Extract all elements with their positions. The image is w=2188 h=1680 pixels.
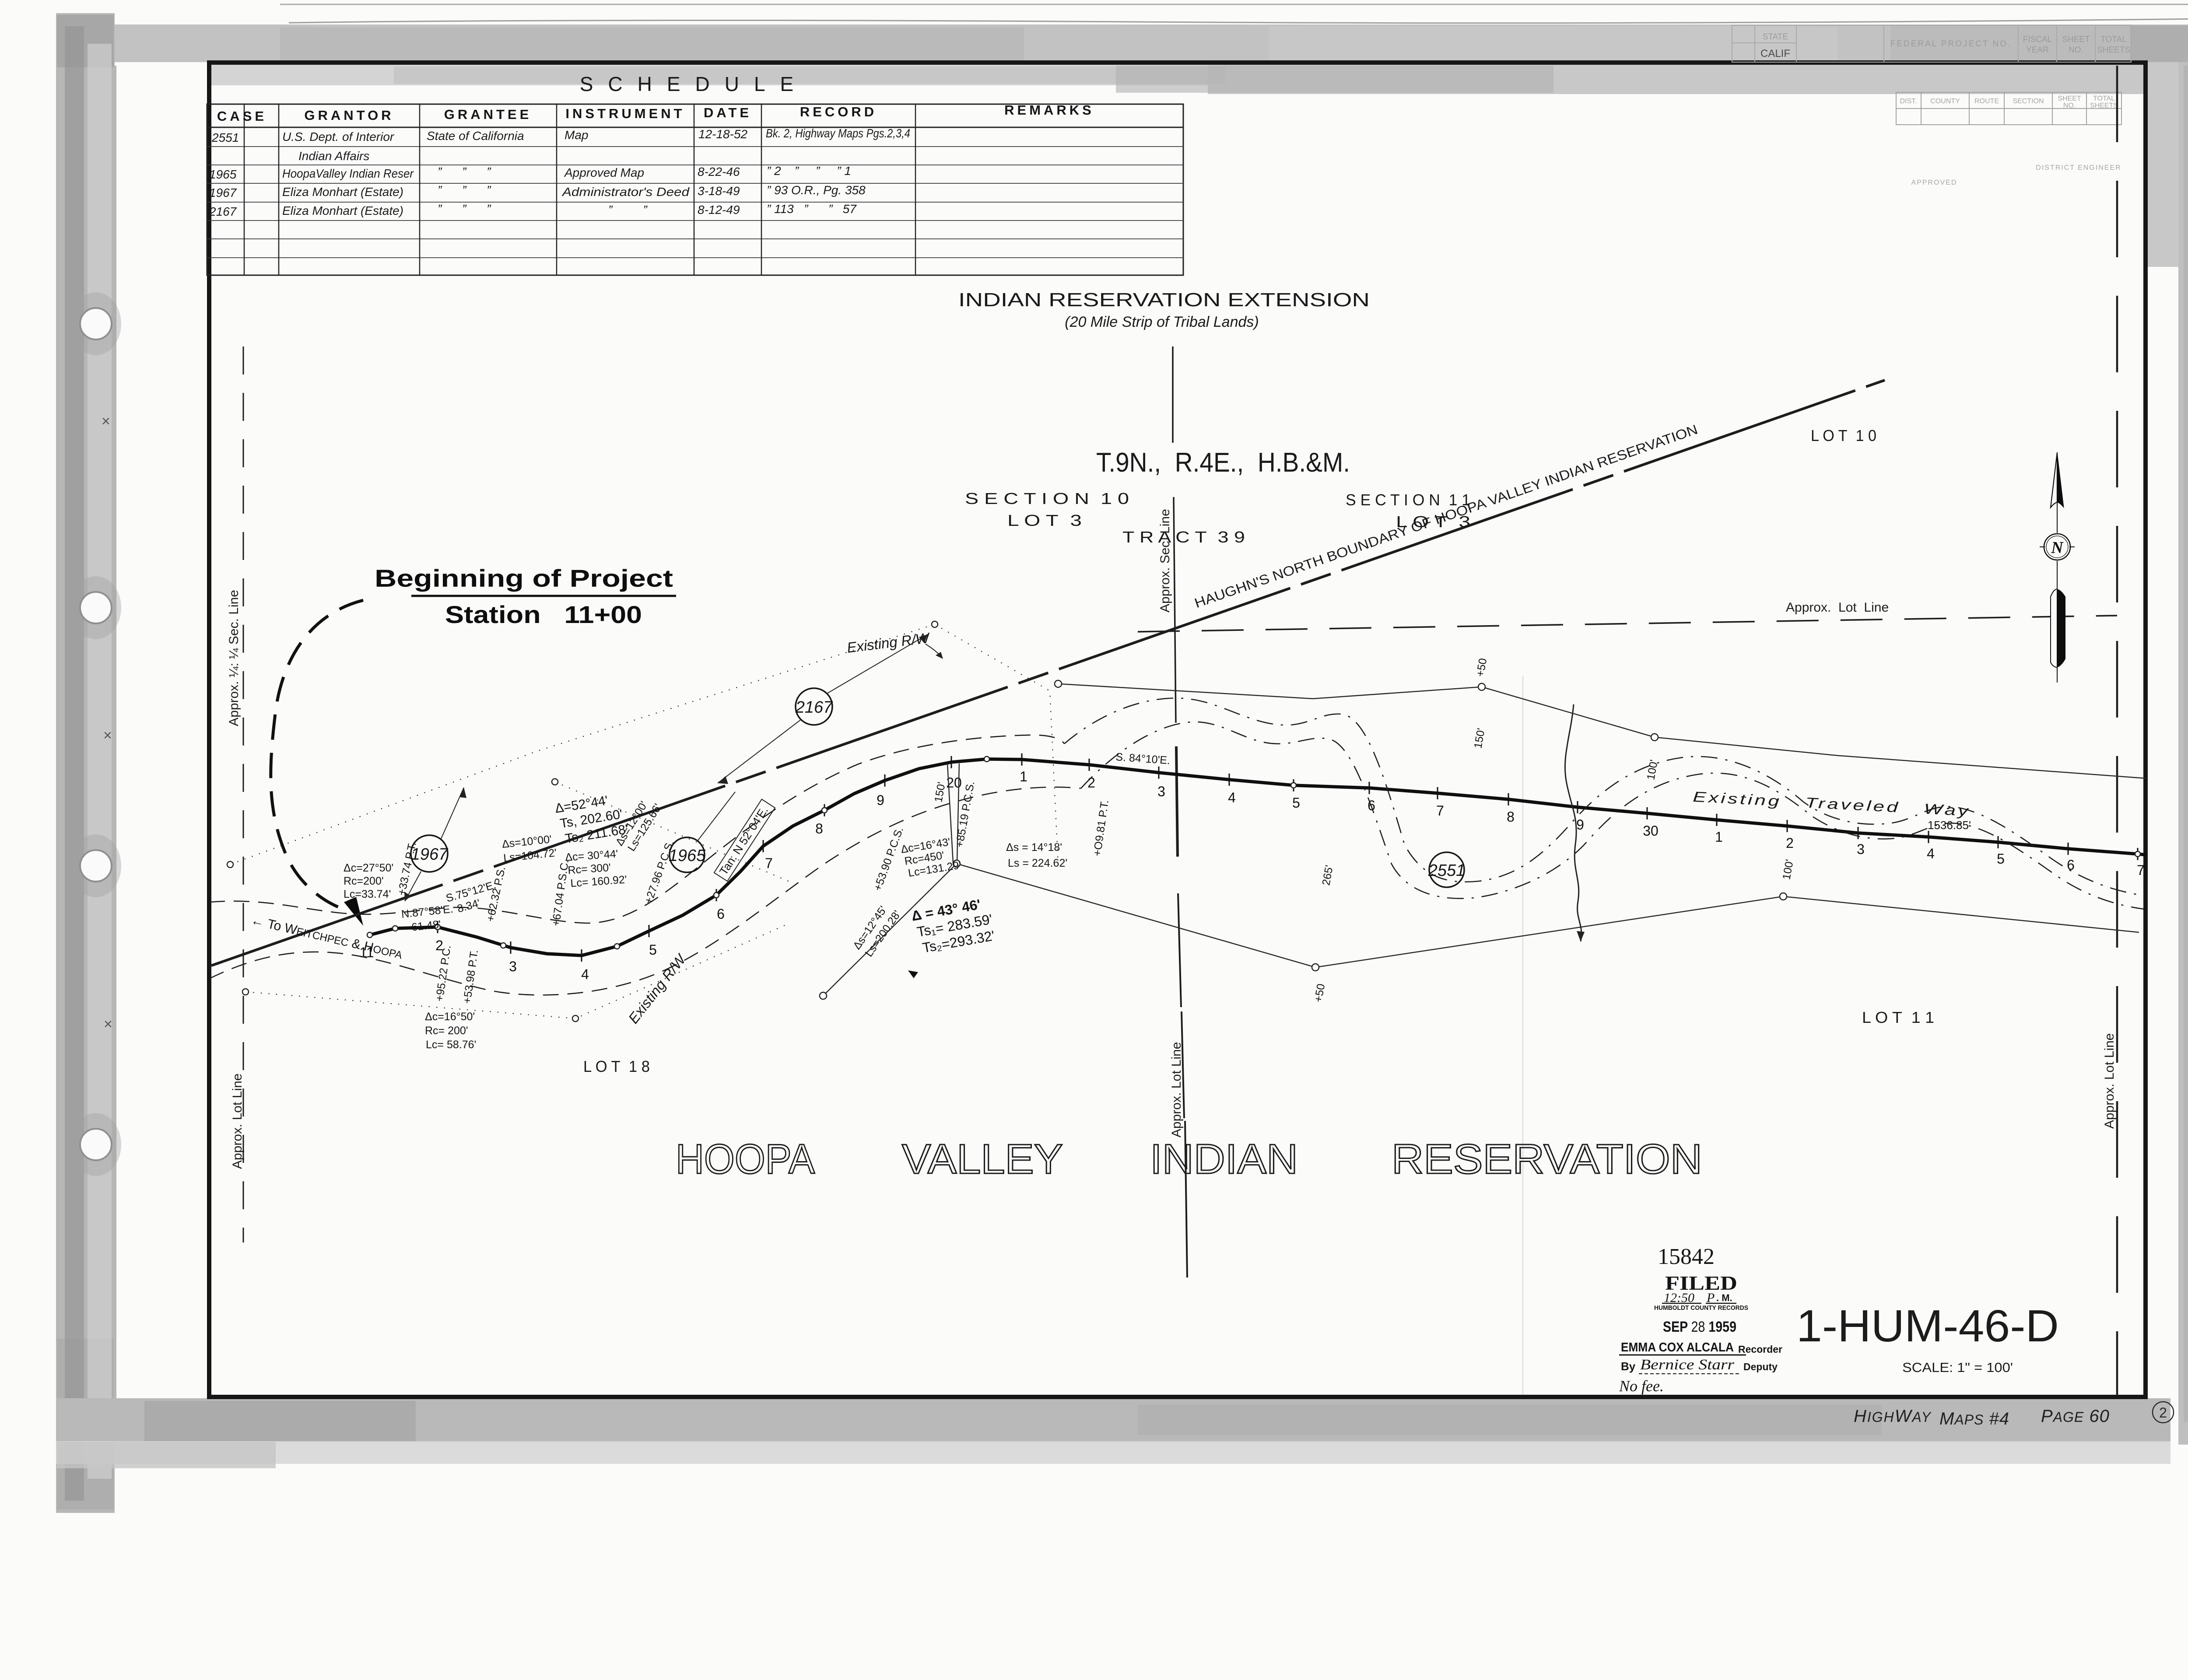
svg-text:2: 2 — [2159, 1405, 2167, 1421]
svg-text:2167: 2167 — [795, 698, 833, 717]
svg-text:265': 265' — [1320, 864, 1336, 886]
svg-text:Rc= 300': Rc= 300' — [568, 861, 611, 877]
svg-text:T R A C T 3 9: T R A C T 3 9 — [1122, 528, 1245, 546]
svg-text:4: 4 — [581, 966, 589, 982]
svg-text:Existing R/W: Existing R/W — [625, 950, 689, 1026]
svg-text:Bernice Starr: Bernice Starr — [1640, 1357, 1735, 1373]
svg-text:150': 150' — [1472, 727, 1487, 749]
svg-text:L O T 1 0: L O T 1 0 — [1811, 427, 1876, 444]
svg-text:7: 7 — [2137, 862, 2145, 878]
svg-text:. M.: . M. — [1716, 1292, 1732, 1303]
svg-text:HIGHWAY: HIGHWAY — [1854, 1407, 1932, 1426]
svg-text:SEP 28 1959: SEP 28 1959 — [1663, 1319, 1736, 1335]
svg-text:2551: 2551 — [211, 131, 239, 144]
svg-text:3: 3 — [509, 959, 517, 974]
svg-text:Approved Map: Approved Map — [564, 166, 644, 179]
svg-text:SHEET: SHEET — [2062, 35, 2090, 44]
svg-text:1: 1 — [1020, 769, 1027, 784]
svg-text:T.9N., R.4E., H.B.&M.: T.9N., R.4E., H.B.&M. — [1096, 448, 1350, 478]
svg-text:No fee.: No fee. — [1619, 1377, 1664, 1395]
svg-text:” 113 ” ” 57: ” 113 ” ” 57 — [767, 202, 857, 216]
svg-text:TOTAL: TOTAL — [2100, 35, 2126, 44]
svg-text:SHEET: SHEET — [2058, 95, 2081, 102]
svg-text:INDIAN RESERVATION EXTENSION: INDIAN RESERVATION EXTENSION — [958, 289, 1370, 311]
svg-text:15842: 15842 — [1658, 1244, 1715, 1269]
svg-text:Administrator's Deed: Administrator's Deed — [561, 185, 690, 199]
svg-text:” 2 ” ” ” 1: ” 2 ” ” ” 1 — [767, 164, 851, 178]
svg-text:+50: +50 — [1312, 983, 1327, 1003]
svg-text:Station 11+00: Station 11+00 — [445, 601, 642, 628]
svg-text:L O T 3: L O T 3 — [1007, 511, 1082, 529]
svg-text:Map: Map — [565, 128, 588, 142]
svg-text:+27.96 P.C.S.: +27.96 P.C.S. — [642, 839, 677, 906]
svg-text:6: 6 — [717, 906, 725, 922]
svg-text:TOTAL: TOTAL — [2093, 95, 2115, 102]
svg-text:Δs = 14°18': Δs = 14°18' — [1006, 841, 1062, 854]
svg-text:HUMBOLDT COUNTY RECORDS: HUMBOLDT COUNTY RECORDS — [1654, 1304, 1748, 1312]
svg-text:NO.: NO. — [2063, 102, 2076, 109]
svg-text:8: 8 — [815, 821, 823, 836]
svg-text:7: 7 — [1436, 803, 1444, 819]
svg-text:SECTION: SECTION — [2013, 98, 2044, 105]
svg-text:INSTRUMENT: INSTRUMENT — [565, 106, 685, 121]
svg-text:NO.: NO. — [2069, 45, 2083, 55]
svg-text:8: 8 — [1507, 809, 1515, 825]
svg-text:3: 3 — [1857, 841, 1865, 857]
svg-text:Δc=27°50': Δc=27°50' — [344, 862, 393, 874]
svg-text:← To WEITCHPEC & HOOPA: ← To WEITCHPEC & HOOPA — [249, 913, 403, 962]
svg-text:SCALE: 1" = 100': SCALE: 1" = 100' — [1902, 1360, 2013, 1375]
svg-text:Approx. Lot Line: Approx. Lot Line — [1169, 1042, 1184, 1137]
svg-text:Recorder: Recorder — [1738, 1344, 1782, 1355]
svg-text:Approx. ¼: ¼ Sec. Line: Approx. ¼: ¼ Sec. Line — [227, 590, 241, 726]
svg-text:” ”: ” ” — [608, 203, 648, 217]
svg-text:Eliza Monhart (Estate): Eliza Monhart (Estate) — [282, 185, 403, 199]
svg-text:×: × — [103, 727, 112, 744]
svg-text:RECORD: RECORD — [800, 104, 877, 119]
svg-text:APPROVED: APPROVED — [1911, 179, 1957, 186]
svg-text:N.87°58'E.: N.87°58'E. — [401, 903, 454, 920]
svg-text:Eliza Monhart (Estate): Eliza Monhart (Estate) — [282, 204, 403, 217]
svg-text:ROUTE: ROUTE — [1974, 98, 1999, 105]
svg-text:5: 5 — [1997, 851, 2005, 867]
svg-text:YEAR: YEAR — [2026, 45, 2049, 55]
svg-text:×: × — [102, 413, 110, 430]
svg-text:COUNTY: COUNTY — [1930, 98, 1960, 105]
svg-text:RESERVATION: RESERVATION — [1392, 1136, 1702, 1183]
svg-text:+O9.81 P.T.: +O9.81 P.T. — [1091, 799, 1111, 857]
svg-text:MAPS #4: MAPS #4 — [1939, 1409, 2009, 1428]
svg-text:State of California: State of California — [427, 129, 524, 143]
svg-text:GRANTOR: GRANTOR — [304, 108, 394, 123]
svg-text:Approx. Lot Line: Approx. Lot Line — [230, 1074, 245, 1169]
svg-text:N: N — [2051, 539, 2064, 557]
svg-text:” ” ”: ” ” ” — [438, 183, 491, 197]
svg-text:4: 4 — [1927, 846, 1935, 861]
svg-text:1967: 1967 — [209, 186, 237, 199]
svg-text:FISCAL: FISCAL — [2023, 35, 2052, 44]
svg-text:” ” ”: ” ” ” — [438, 165, 491, 178]
svg-text:U.S. Dept. of Interior: U.S. Dept. of Interior — [282, 130, 395, 143]
svg-text:Indian Affairs: Indian Affairs — [298, 149, 369, 163]
svg-text:12-18-52: 12-18-52 — [698, 127, 748, 141]
svg-text:DATE: DATE — [704, 105, 752, 120]
svg-text:Δc=16°50': Δc=16°50' — [425, 1011, 475, 1023]
svg-text:HOOPA: HOOPA — [676, 1136, 815, 1183]
svg-text:Bk. 2, Highway Maps Pgs.2,3,4: Bk. 2, Highway Maps Pgs.2,3,4 — [766, 126, 910, 140]
svg-text:GRANTEE: GRANTEE — [444, 107, 532, 122]
svg-text:SCHEDULE: SCHEDULE — [580, 73, 809, 95]
svg-text:Deputy: Deputy — [1743, 1361, 1778, 1372]
svg-text:Rc= 200': Rc= 200' — [425, 1025, 468, 1037]
svg-text:SHEETS: SHEETS — [2097, 45, 2130, 55]
svg-text:STATE: STATE — [1763, 32, 1788, 42]
svg-text:SHEETS: SHEETS — [2090, 102, 2118, 109]
svg-text:PAGE 60: PAGE 60 — [2041, 1407, 2110, 1426]
svg-text:FEDERAL PROJECT NO.: FEDERAL PROJECT NO. — [1890, 39, 2012, 49]
svg-text:INDIAN: INDIAN — [1150, 1136, 1298, 1183]
svg-text:(20 Mile Strip of Tribal Lands: (20 Mile Strip of Tribal Lands) — [1065, 314, 1259, 330]
svg-text:Beginning of Project: Beginning of Project — [375, 564, 673, 592]
svg-text:9: 9 — [1576, 817, 1584, 833]
svg-text:8-12-49: 8-12-49 — [698, 203, 740, 217]
svg-text:CALIF: CALIF — [1760, 48, 1790, 59]
svg-text:DIST.: DIST. — [1900, 98, 1917, 105]
svg-text:S E C T I O N 1 0: S E C T I O N 1 0 — [965, 490, 1129, 507]
svg-text:1: 1 — [1715, 829, 1723, 845]
svg-text:Rc=200': Rc=200' — [344, 875, 384, 887]
svg-text:×: × — [104, 1016, 112, 1032]
svg-text:1965: 1965 — [669, 847, 706, 865]
svg-text:S. 84°10'E.: S. 84°10'E. — [1115, 751, 1171, 767]
svg-text:DISTRICT ENGINEER: DISTRICT ENGINEER — [2036, 164, 2121, 171]
svg-text:Lc= 58.76': Lc= 58.76' — [426, 1039, 476, 1051]
svg-text:1-HUM-46-D: 1-HUM-46-D — [1796, 1301, 2059, 1351]
svg-text:EMMA COX ALCALA: EMMA COX ALCALA — [1621, 1340, 1734, 1354]
svg-text:+67.04 P.S.C.: +67.04 P.S.C. — [550, 859, 571, 927]
svg-text:L O T 1 1: L O T 1 1 — [1862, 1008, 1934, 1026]
svg-text:5: 5 — [1292, 795, 1300, 811]
svg-text:61.48': 61.48' — [411, 918, 442, 934]
svg-text:Lc=33.74': Lc=33.74' — [344, 888, 391, 900]
svg-text:Ls = 224.62': Ls = 224.62' — [1008, 857, 1067, 869]
svg-text:Approx. Sec. Line: Approx. Sec. Line — [1158, 509, 1172, 612]
svg-text:7: 7 — [765, 855, 773, 871]
svg-text:9: 9 — [877, 792, 884, 808]
svg-text:+62.32 P.S.: +62.32 P.S. — [484, 865, 508, 923]
svg-text:VALLEY: VALLEY — [902, 1136, 1063, 1183]
svg-text:Existing Traveled Way: Existing Traveled Way — [1693, 788, 1971, 819]
svg-text:Approx. Lot Line: Approx. Lot Line — [1786, 600, 1889, 615]
svg-text:100': 100' — [1780, 858, 1796, 881]
svg-text:HoopaValley Indian Reser: HoopaValley Indian Reser — [282, 167, 414, 180]
svg-text:+33.74 P.T.: +33.74 P.T. — [395, 841, 418, 896]
svg-text:2167: 2167 — [209, 205, 237, 218]
svg-text:CASE: CASE — [217, 108, 267, 124]
svg-text:8-22-46: 8-22-46 — [698, 165, 740, 178]
svg-text:” ” ”: ” ” ” — [438, 202, 491, 216]
svg-text:3-18-49: 3-18-49 — [698, 184, 740, 198]
svg-text:100': 100' — [1645, 759, 1660, 781]
svg-text:1536.85': 1536.85' — [1928, 819, 1971, 832]
svg-text:+53.90 P.C.S.: +53.90 P.C.S. — [871, 826, 906, 892]
svg-text:+50: +50 — [1474, 657, 1489, 678]
svg-text:+53.98 P.T.: +53.98 P.T. — [461, 949, 480, 1004]
svg-text:2: 2 — [1786, 835, 1794, 851]
svg-text:4: 4 — [1228, 790, 1236, 805]
svg-text:L O T 1 8: L O T 1 8 — [583, 1057, 650, 1075]
svg-text:By: By — [1621, 1360, 1636, 1373]
svg-text:Existing R/W: Existing R/W — [846, 630, 931, 656]
svg-text:1965: 1965 — [209, 168, 237, 181]
svg-text:3: 3 — [1157, 784, 1165, 799]
svg-text:Approx. Lot Line: Approx. Lot Line — [2102, 1033, 2117, 1129]
svg-text:150': 150' — [932, 781, 948, 803]
svg-text:30: 30 — [1643, 823, 1659, 839]
svg-text:5: 5 — [649, 942, 657, 958]
svg-text:2551: 2551 — [1428, 861, 1466, 880]
svg-text:REMARKS: REMARKS — [1004, 102, 1094, 118]
svg-text:” 93 O.R., Pg. 358: ” 93 O.R., Pg. 358 — [767, 183, 866, 197]
